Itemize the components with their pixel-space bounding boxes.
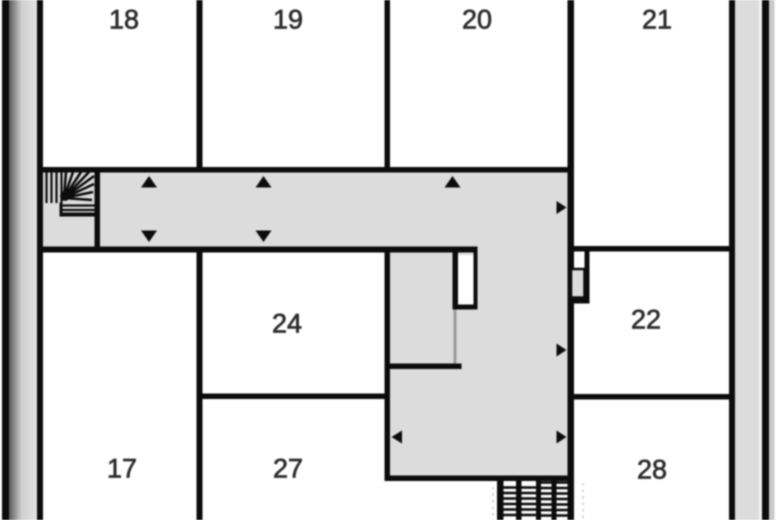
svg-text:18: 18 bbox=[109, 5, 139, 35]
svg-text:28: 28 bbox=[637, 455, 667, 485]
svg-text:17: 17 bbox=[107, 454, 137, 484]
svg-text:22: 22 bbox=[631, 305, 661, 335]
svg-text:24: 24 bbox=[272, 309, 302, 339]
svg-text:27: 27 bbox=[273, 454, 303, 484]
svg-text:21: 21 bbox=[642, 5, 672, 35]
svg-text:20: 20 bbox=[462, 5, 492, 35]
svg-text:19: 19 bbox=[273, 5, 303, 35]
